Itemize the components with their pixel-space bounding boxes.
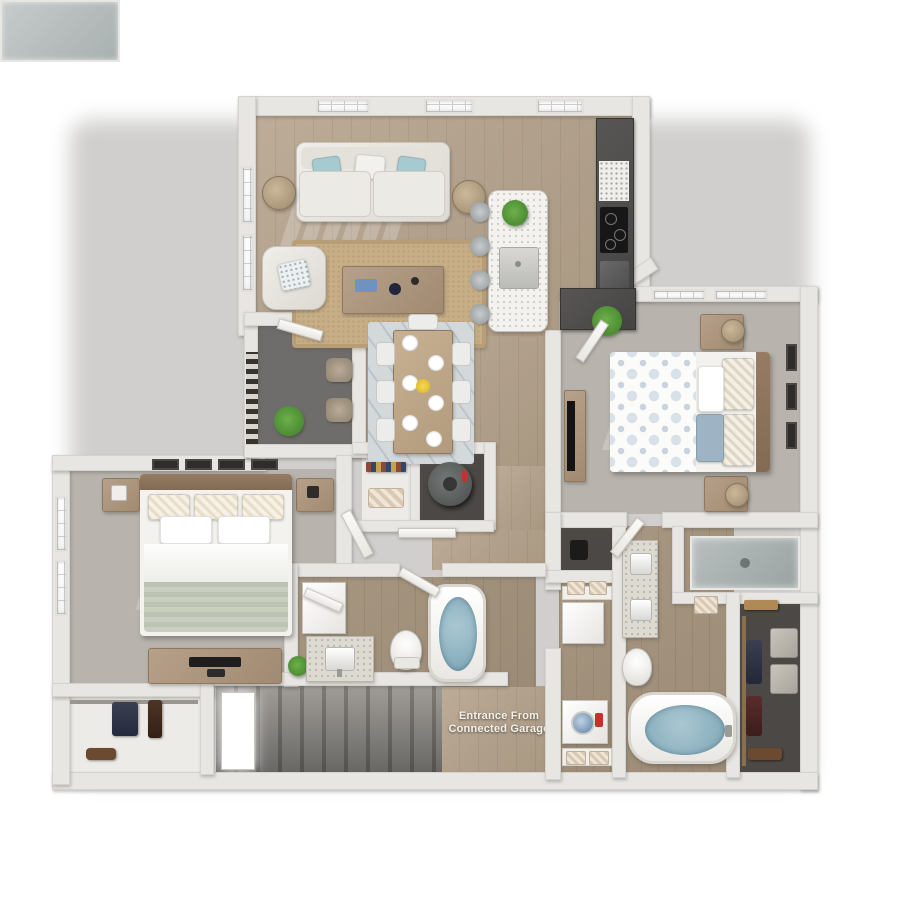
water-heater-valve — [462, 470, 467, 482]
coffee-table-book — [355, 279, 377, 292]
window-kitchen — [536, 99, 584, 114]
master-pillow-5 — [218, 516, 270, 544]
laundry-dryer — [562, 602, 604, 644]
bar-stool-2 — [470, 236, 490, 256]
utility-door — [398, 528, 456, 538]
coffee-table — [342, 266, 444, 314]
den-chair-2 — [326, 398, 352, 422]
master-nightstand-left-decor — [111, 485, 127, 501]
niche-books — [366, 462, 406, 472]
kitchen-counter — [599, 161, 629, 201]
bath2-tub-water — [645, 705, 725, 755]
window-living-1 — [316, 99, 370, 114]
bedroom2-pillow-blue — [696, 414, 724, 462]
cooktop — [600, 207, 628, 253]
wall-shower-left — [672, 526, 684, 596]
dining-plate-6 — [426, 431, 442, 447]
walkin-drawer-2 — [770, 664, 798, 694]
window-bedroom2-1 — [652, 289, 706, 301]
bedroom2-wall-art-3 — [786, 422, 797, 449]
bedroom2-headboard — [756, 352, 770, 472]
bath-sink — [325, 647, 355, 671]
walkin-shoes-top — [744, 600, 778, 610]
walkin-clothes-navy — [746, 640, 762, 684]
dining-chair-r1 — [452, 342, 471, 366]
bedroom2-lamp-bottom — [725, 483, 749, 507]
entrance-label-line2: Connected Garage — [440, 723, 558, 736]
master-sheet — [144, 544, 288, 584]
bath2-sink-1 — [630, 553, 652, 575]
bath-tub — [428, 584, 486, 682]
wall-bath-top-b — [442, 563, 546, 577]
coffee-table-decor — [411, 277, 419, 285]
sofa — [296, 142, 450, 222]
wall-bath-top-a — [284, 563, 400, 577]
walkin-clothes-maroon — [746, 696, 762, 736]
island-sink — [499, 247, 539, 289]
dining-chair-l2 — [376, 380, 395, 404]
walkin-shoes-bottom — [748, 748, 782, 760]
bedroom2-nightstand-bottom — [704, 476, 748, 512]
dining-flowers — [416, 379, 430, 393]
window-living-left-2 — [241, 234, 254, 292]
wall-right — [800, 286, 818, 790]
louver-screen — [246, 352, 258, 444]
walkin-drawer-1 — [770, 628, 798, 658]
detergent-bottle — [595, 713, 603, 727]
wall-utility-right — [484, 442, 496, 530]
dining-chair-l1 — [376, 342, 395, 366]
bedroom2-lamp-top — [721, 319, 745, 343]
island-faucet — [515, 261, 521, 267]
bath-faucet — [337, 669, 342, 677]
wall-bedroom2-bottom-b — [662, 512, 818, 528]
master-wall-art-3 — [218, 459, 245, 470]
laundry-basket-3 — [566, 751, 586, 765]
bedroom2-bed — [610, 352, 770, 472]
dining-plate-5 — [402, 415, 418, 431]
bedroom2-tv — [567, 401, 575, 471]
coffee-table-vase — [389, 283, 401, 295]
niche-basket — [368, 488, 404, 508]
bath2-tub — [628, 692, 736, 764]
dining-plate-4 — [428, 395, 444, 411]
wall-hall-right-lower — [545, 648, 561, 780]
bath-toilet — [390, 630, 422, 670]
entry-closet-coat-navy — [112, 702, 138, 736]
master-blanket — [144, 582, 288, 632]
entry-closet-coat-brown — [148, 700, 162, 738]
bath-toilet-tank — [394, 657, 420, 669]
entrance-label: Entrance From Connected Garage — [440, 710, 558, 736]
dining-plate-1 — [402, 335, 418, 351]
floor-plan: Entrance From Connected Garage — [0, 0, 900, 900]
bath2-sink-2 — [630, 599, 652, 621]
bedroom2-nightstand-top — [700, 314, 744, 350]
bath-tub-water — [439, 597, 477, 671]
window-master-1 — [55, 496, 68, 552]
master-wall-art-4 — [251, 459, 278, 470]
master-headboard — [140, 474, 292, 490]
window-living-2 — [424, 99, 474, 114]
master-plant — [288, 656, 308, 676]
garage-entry-door — [221, 692, 255, 770]
wall-entry-closet-right — [200, 683, 214, 775]
bedroom2-tv-console — [564, 390, 586, 482]
laundry-basket-2 — [589, 581, 607, 595]
cooktop-burner-1 — [605, 213, 617, 225]
floor-plan-render-canvas: { "scene": { "description": "3D top-down… — [0, 0, 900, 900]
laundry-shelf-bottom — [562, 748, 612, 766]
master-nightstand-right — [296, 478, 334, 512]
bedroom2-duvet-floral — [610, 352, 696, 472]
shower-drain — [740, 558, 750, 568]
hall-closet-floor — [559, 526, 614, 574]
bath-linen-door — [303, 587, 344, 612]
cooktop-burner-3 — [605, 239, 616, 250]
bath2-vanity — [622, 540, 658, 638]
bedroom2-wall-art-1 — [786, 344, 797, 371]
dining-chair-l3 — [376, 418, 395, 442]
dining-chair-r3 — [452, 418, 471, 442]
master-nightstand-right-decor — [307, 486, 319, 498]
dining-chair-head — [408, 314, 438, 330]
window-master-2 — [55, 560, 68, 616]
armchair-pillow — [276, 258, 311, 292]
dining-table — [393, 330, 453, 454]
water-heater-cap — [443, 477, 457, 491]
hallway-floor-upper — [492, 466, 546, 530]
water-heater — [428, 462, 472, 506]
den-plant — [274, 406, 304, 436]
bar-stool-4 — [470, 304, 490, 324]
cooktop-burner-2 — [614, 229, 626, 241]
window-bedroom2-2 — [714, 289, 768, 301]
master-tv-stand — [207, 669, 225, 677]
bath2-shelf-basket — [694, 596, 718, 614]
master-bed — [140, 474, 292, 636]
kitchen-cabinets — [596, 118, 634, 304]
hall-closet-shoes — [570, 540, 582, 560]
master-wall-art-2 — [185, 459, 212, 470]
bath-linen-closet — [302, 582, 346, 634]
master-wall-art-1 — [152, 459, 179, 470]
master-pillow-4 — [160, 516, 212, 544]
bath2-tub-faucet — [725, 725, 732, 737]
washer-door — [571, 711, 595, 735]
shower-floor — [0, 0, 120, 62]
wall-master-bottom — [52, 683, 214, 697]
bedroom2-pillow-3 — [698, 366, 724, 412]
entry-closet-shoes — [86, 748, 116, 760]
den-chair-1 — [326, 358, 352, 382]
shower-glass-door — [690, 536, 800, 590]
dining-plate-2 — [428, 355, 444, 371]
bath-vanity — [306, 636, 374, 682]
master-nightstand-left — [102, 478, 140, 512]
island-plant — [502, 200, 528, 226]
laundry-shelf-top — [562, 586, 612, 600]
wall-bedroom2-left — [545, 330, 561, 526]
bedroom2-pillow-2 — [722, 414, 754, 466]
entrance-label-line1: Entrance From — [440, 710, 558, 723]
laundry-basket-4 — [589, 751, 609, 765]
table-lamp-left — [262, 176, 296, 210]
master-dresser — [148, 648, 282, 684]
laundry-basket-1 — [567, 581, 585, 595]
walkin-hanger-rod — [742, 616, 746, 766]
bedroom2-wall-art-2 — [786, 383, 797, 410]
bar-stool-3 — [470, 270, 490, 290]
bar-stool-1 — [470, 202, 490, 222]
wall-bottom — [52, 772, 818, 790]
master-tv — [189, 657, 241, 667]
bedroom2-pillow-1 — [722, 358, 754, 410]
laundry-washer — [562, 700, 608, 744]
armchair — [262, 246, 326, 310]
sofa-seat-2 — [373, 171, 445, 217]
bath2-toilet — [622, 648, 652, 686]
window-living-left-1 — [241, 166, 254, 224]
dining-chair-r2 — [452, 380, 471, 404]
sofa-seat-1 — [299, 171, 371, 217]
